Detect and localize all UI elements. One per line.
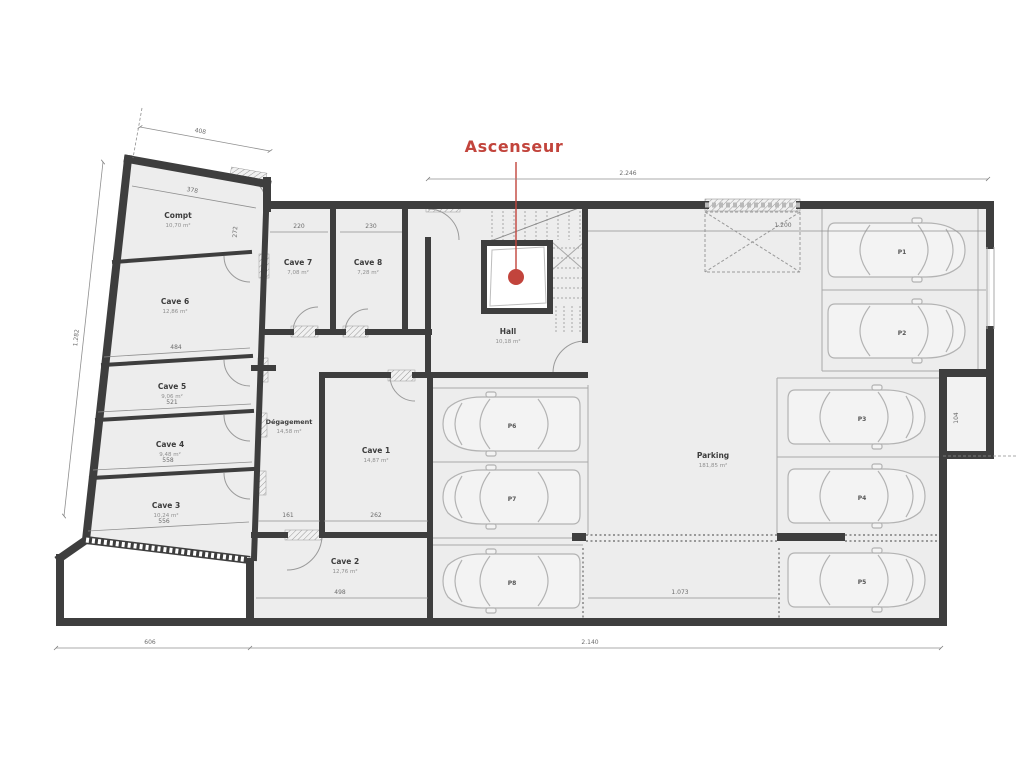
room-label-compt: Compt [164, 211, 192, 220]
dim-opening: 1.200 [774, 222, 791, 229]
dim-compt-side: 272 [232, 226, 240, 238]
room-label-cave2: Cave 2 [331, 557, 359, 566]
spot-label-p1: P1 [898, 249, 907, 256]
spot-label-p6: P6 [508, 423, 517, 430]
spot-label-p3: P3 [858, 416, 867, 423]
dim-cave8: 230 [365, 223, 377, 230]
dim-cave5: 521 [166, 399, 178, 406]
dim-top: 2.246 [619, 170, 636, 177]
spot-label-p2: P2 [898, 330, 907, 337]
dim-degagement: 161 [282, 512, 294, 519]
elevator-marker-dot [508, 269, 524, 285]
room-area-cave7: 7,08 m² [287, 269, 309, 276]
room-area-cave6: 12,86 m² [162, 308, 187, 315]
dim-bottom-left: 606 [144, 639, 156, 646]
room-label-cave8: Cave 8 [354, 258, 382, 267]
room-label-degagement: Dégagement [266, 418, 313, 426]
room-area-compt: 10,70 m² [165, 222, 190, 229]
spot-label-p4: P4 [858, 495, 867, 502]
room-area-cave8: 7,28 m² [357, 269, 379, 276]
spot-label-p5: P5 [858, 579, 867, 586]
elevator-callout-label: Ascenseur [465, 137, 564, 156]
spot-label-p7: P7 [508, 496, 517, 503]
room-label-parking: Parking [697, 451, 729, 460]
dim-notch: 104 [953, 412, 960, 424]
dim-left: 1.282 [72, 329, 81, 347]
dim-bottom: 2.140 [581, 639, 598, 646]
floor-plan-page: Ascenseur Compt 10,70 m² Cave 6 12,86 m²… [0, 0, 1024, 768]
car-p3 [788, 385, 925, 449]
dim-cave4: 558 [162, 457, 174, 464]
room-area-parking: 181,85 m² [699, 462, 728, 469]
car-p5 [788, 548, 925, 612]
dim-cave3: 556 [158, 518, 170, 525]
car-p4 [788, 464, 925, 528]
room-label-hall: Hall [500, 327, 516, 336]
room-label-cave1: Cave 1 [362, 446, 390, 455]
dim-cave7: 220 [293, 223, 305, 230]
spot-label-p8: P8 [508, 580, 517, 587]
room-label-cave7: Cave 7 [284, 258, 312, 267]
dim-cave1: 262 [370, 512, 382, 519]
room-area-degagement: 14,58 m² [276, 428, 301, 435]
dim-cave2: 498 [334, 589, 346, 596]
room-area-cave2: 12,76 m² [332, 568, 357, 575]
dim-cave6: 484 [170, 344, 182, 351]
room-area-cave1: 14,87 m² [363, 457, 388, 464]
room-label-cave6: Cave 6 [161, 297, 189, 306]
car-p2 [828, 299, 965, 363]
room-label-cave5: Cave 5 [158, 382, 186, 391]
floor-plan-drawing: Ascenseur Compt 10,70 m² Cave 6 12,86 m²… [0, 0, 1024, 768]
room-label-cave3: Cave 3 [152, 501, 180, 510]
room-area-hall: 10,18 m² [495, 338, 520, 345]
dim-ramp: 1.073 [671, 589, 688, 596]
car-p1 [828, 218, 965, 282]
dim-top-left: 408 [194, 127, 207, 136]
room-label-cave4: Cave 4 [156, 440, 184, 449]
